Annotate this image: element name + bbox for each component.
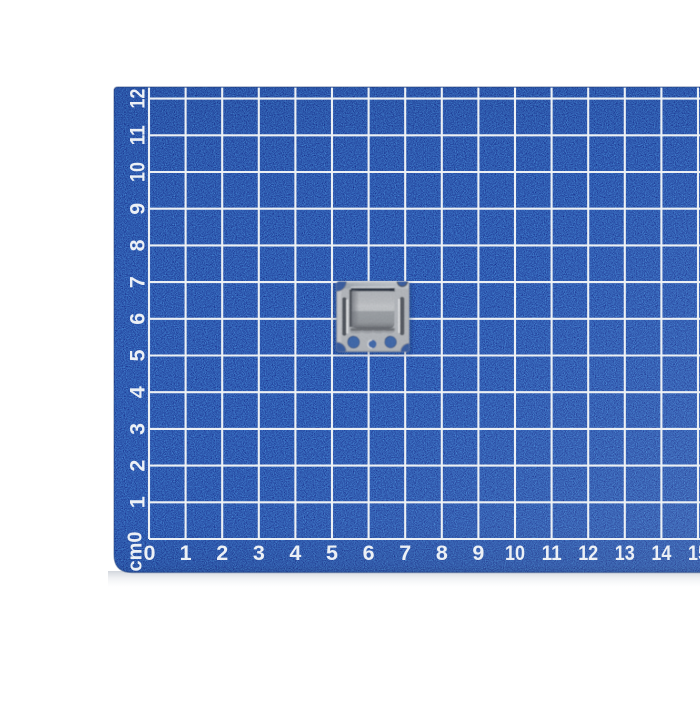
svg-text:2: 2 <box>125 460 149 472</box>
svg-text:5: 5 <box>125 349 149 361</box>
svg-text:14: 14 <box>651 541 671 565</box>
svg-text:7: 7 <box>399 541 411 565</box>
svg-text:12: 12 <box>578 541 598 565</box>
svg-text:7: 7 <box>125 276 149 288</box>
svg-text:6: 6 <box>363 541 375 565</box>
svg-text:9: 9 <box>125 203 149 215</box>
svg-text:13: 13 <box>615 541 635 565</box>
svg-text:11: 11 <box>542 541 562 565</box>
svg-text:10: 10 <box>125 162 149 182</box>
svg-text:9: 9 <box>472 541 484 565</box>
svg-text:cm0: cm0 <box>124 532 147 572</box>
svg-text:11: 11 <box>125 125 149 145</box>
svg-text:12: 12 <box>125 89 149 109</box>
svg-text:8: 8 <box>436 541 448 565</box>
svg-text:6: 6 <box>125 313 149 325</box>
svg-text:2: 2 <box>216 541 228 565</box>
svg-text:8: 8 <box>125 239 149 251</box>
svg-text:4: 4 <box>125 386 149 398</box>
svg-text:1: 1 <box>180 541 192 565</box>
svg-text:1: 1 <box>125 496 149 508</box>
svg-text:15: 15 <box>688 541 700 565</box>
svg-text:5: 5 <box>326 541 338 565</box>
svg-text:3: 3 <box>125 423 149 435</box>
svg-text:4: 4 <box>289 541 301 565</box>
svg-text:3: 3 <box>253 541 265 565</box>
svg-text:10: 10 <box>505 541 525 565</box>
